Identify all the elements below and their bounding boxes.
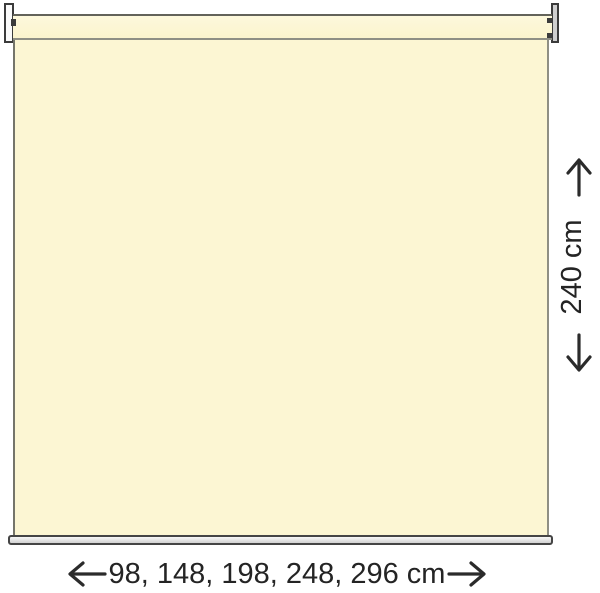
left-bracket-pin [11,19,16,26]
roller-tube [13,14,552,40]
right-bracket-screw-top [547,18,552,23]
blind-fabric-panel [13,40,549,535]
up-arrow-icon [566,155,592,197]
down-arrow-icon [566,333,592,375]
left-arrow-icon [65,561,107,587]
right-arrow-icon [447,561,489,587]
bottom-weight-bar [8,535,553,545]
right-bracket-screw-bottom [547,33,552,38]
height-dimension-label: 240 cm [557,217,587,317]
width-dimension-label: 98, 148, 198, 248, 296 cm [107,559,447,589]
right-mounting-bracket [551,3,559,43]
roller-blind-diagram: 240 cm 98, 148, 198, 248, 296 cm [0,0,600,593]
